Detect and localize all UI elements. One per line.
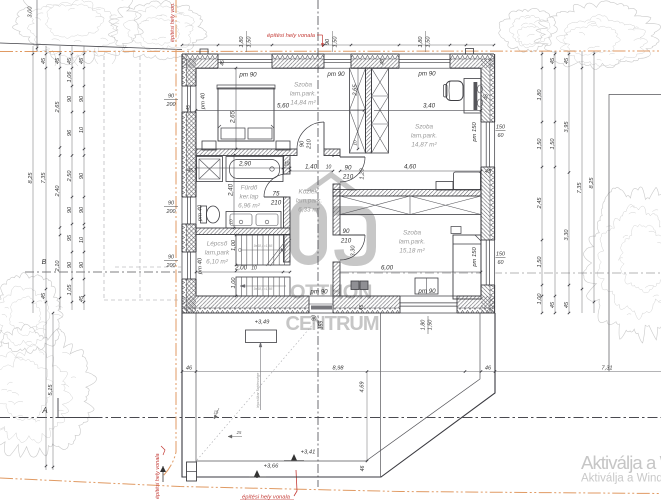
svg-text:45: 45 [55,57,61,64]
svg-text:pm 90: pm 90 [417,71,436,78]
svg-text:90: 90 [299,140,305,147]
svg-text:8,25: 8,25 [589,177,595,189]
svg-text:210: 210 [270,200,282,207]
svg-text:1,40: 1,40 [305,163,318,170]
svg-text:3,30: 3,30 [351,245,357,257]
svg-text:2,65: 2,65 [352,84,358,97]
svg-text:90: 90 [67,261,73,268]
svg-text:45: 45 [359,305,365,311]
svg-text:159: 159 [318,321,324,330]
svg-text:25: 25 [236,430,242,435]
svg-text:5,15: 5,15 [48,384,54,396]
svg-text:10: 10 [79,126,85,133]
svg-text:+3,49: +3,49 [255,320,270,326]
svg-text:200: 200 [166,209,176,215]
svg-text:10: 10 [251,265,257,271]
svg-text:90: 90 [67,95,73,102]
svg-text:15,18 m²: 15,18 m² [399,248,425,255]
svg-text:90: 90 [79,172,85,179]
svg-text:45: 45 [485,169,492,175]
svg-text:Aktiválja a W: Aktiválja a W [581,452,661,473]
svg-text:1,00: 1,00 [231,239,237,251]
svg-text:150: 150 [496,252,505,258]
svg-text:10: 10 [79,236,85,243]
svg-text:14,87 m²: 14,87 m² [411,142,437,149]
svg-text:Aktiválja a Wind: Aktiválja a Wind [581,473,661,485]
svg-text:Lépcső: Lépcső [207,241,228,248]
svg-text:90: 90 [168,255,174,261]
svg-text:6,96 m²: 6,96 m² [238,203,261,210]
svg-text:1,00: 1,00 [537,293,543,305]
svg-text:2,40: 2,40 [55,185,61,198]
svg-text:9x18,4=1,66: 9x18,4=1,66 [254,287,273,291]
svg-text:7,35: 7,35 [577,182,583,194]
svg-text:45: 45 [564,57,570,64]
svg-text:45: 45 [220,60,226,66]
svg-text:1,50: 1,50 [537,138,543,150]
svg-text:építési hely vonala: építési hely vonala [242,495,291,500]
svg-text:90: 90 [79,261,85,268]
svg-text:7,35: 7,35 [41,172,47,184]
svg-text:2,90: 2,90 [238,160,252,167]
svg-text:2,40: 2,40 [227,183,234,197]
svg-text:8,25: 8,25 [28,172,34,184]
svg-text:építési hely von.: építési hely von. [170,2,176,42]
svg-text:1,20: 1,20 [359,168,365,180]
svg-text:3,40: 3,40 [423,103,436,110]
svg-text:150: 150 [496,125,505,131]
svg-text:2,45: 2,45 [537,197,543,210]
svg-text:3,00: 3,00 [28,6,34,18]
svg-text:95: 95 [67,234,73,241]
svg-text:6,33 m²: 6,33 m² [298,207,321,214]
svg-text:75: 75 [273,191,280,198]
svg-text:pm 90: pm 90 [238,72,257,79]
svg-text:1,00: 1,00 [231,277,237,289]
svg-text:lam.park.: lam.park. [399,239,425,246]
svg-text:45: 45 [79,295,85,302]
svg-text:90: 90 [79,95,85,102]
svg-text:46: 46 [186,366,193,372]
svg-text:200: 200 [166,102,176,108]
svg-text:200: 200 [166,263,176,269]
svg-text:8,98: 8,98 [333,366,345,372]
svg-text:45: 45 [550,57,556,64]
svg-text:210: 210 [306,138,312,149]
svg-text:lépcsőkar szélessége: lépcsőkar szélessége [256,373,260,408]
svg-text:pm 90: pm 90 [417,288,436,295]
svg-text:pm 90: pm 90 [326,71,345,78]
svg-text:Közlek.: Közlek. [299,189,320,196]
svg-text:45: 45 [550,301,556,308]
svg-text:7,31: 7,31 [602,366,613,372]
svg-text:1,50: 1,50 [247,36,253,48]
svg-text:10: 10 [228,219,234,225]
svg-text:1,80: 1,80 [537,89,543,101]
svg-text:5,60: 5,60 [277,103,290,110]
svg-text:96: 96 [67,129,73,136]
svg-text:10: 10 [352,140,358,146]
svg-text:45: 45 [484,94,490,100]
svg-text:14,84 m²: 14,84 m² [290,100,316,107]
svg-text:Fürdő: Fürdő [241,185,258,192]
svg-text:pm 150: pm 150 [472,122,478,143]
svg-text:lam.park.: lam.park. [411,133,437,140]
svg-text:2,65: 2,65 [55,101,61,114]
svg-text:1,80: 1,80 [418,36,424,48]
svg-text:1,80: 1,80 [239,36,245,48]
svg-text:3,95: 3,95 [564,121,570,133]
svg-text:90: 90 [343,228,350,235]
svg-text:lam.park.: lam.park. [296,198,322,205]
svg-text:45: 45 [186,105,192,111]
svg-text:lam.park: lam.park [205,250,230,257]
svg-text:90: 90 [345,165,352,172]
svg-text:90: 90 [325,38,331,45]
svg-text:46: 46 [485,366,492,372]
svg-text:60: 60 [498,133,504,139]
svg-text:1,50: 1,50 [333,36,339,48]
svg-text:4,60: 4,60 [404,163,417,170]
svg-text:90: 90 [67,206,73,213]
svg-text:4,69: 4,69 [359,382,365,393]
svg-text:90: 90 [79,206,85,213]
svg-text:45: 45 [41,57,47,64]
svg-text:210: 210 [340,238,352,245]
svg-text:építési hely vonala: építési hely vonala [267,33,316,39]
svg-text:pm 40: pm 40 [198,204,204,222]
svg-text:1,50: 1,50 [426,36,432,48]
svg-text:1,50: 1,50 [550,138,556,150]
svg-text:+3,66: +3,66 [264,464,279,470]
svg-text:1,50: 1,50 [427,320,433,331]
svg-text:45: 45 [564,301,570,308]
svg-text:+3,41: +3,41 [301,450,316,456]
svg-text:lam.park.: lam.park. [290,91,316,98]
svg-text:pm 150: pm 150 [472,247,478,268]
svg-text:Szoba: Szoba [403,230,422,237]
svg-text:1,80: 1,80 [420,320,426,331]
svg-text:45: 45 [67,57,73,64]
svg-text:1,06: 1,06 [67,71,73,83]
svg-text:A: A [41,406,47,415]
svg-text:ker.lap: ker.lap [240,194,259,201]
svg-text:45: 45 [41,292,47,299]
svg-text:60: 60 [498,260,504,266]
svg-text:6,10 m²: 6,10 m² [206,259,229,266]
svg-text:1,50: 1,50 [537,256,543,268]
svg-text:90: 90 [168,94,174,100]
svg-text:Szoba: Szoba [415,124,434,131]
svg-text:46: 46 [360,466,366,472]
svg-text:6,00: 6,00 [381,264,394,271]
svg-text:pm 40: pm 40 [201,92,207,110]
svg-text:Szoba: Szoba [294,82,313,89]
svg-text:pm 90: pm 90 [309,289,328,296]
svg-text:45: 45 [187,168,193,174]
svg-text:9x18,4=1,66: 9x18,4=1,66 [254,244,273,248]
svg-text:90: 90 [311,315,317,321]
svg-text:építési hely vonala: építési hely vonala [155,453,161,499]
svg-text:3,30: 3,30 [564,229,570,241]
svg-text:2,50: 2,50 [67,170,73,183]
svg-text:10: 10 [326,165,332,171]
svg-text:CENTRUM: CENTRUM [286,313,379,335]
svg-text:pm 40: pm 40 [198,257,204,275]
svg-text:210: 210 [342,174,354,181]
svg-text:2,65: 2,65 [229,110,236,124]
svg-text:1,05: 1,05 [67,284,73,296]
svg-text:2,10: 2,10 [55,260,61,273]
svg-text:10: 10 [284,161,290,167]
svg-text:90: 90 [168,201,174,207]
svg-text:45: 45 [380,59,386,65]
svg-text:45: 45 [79,57,85,64]
